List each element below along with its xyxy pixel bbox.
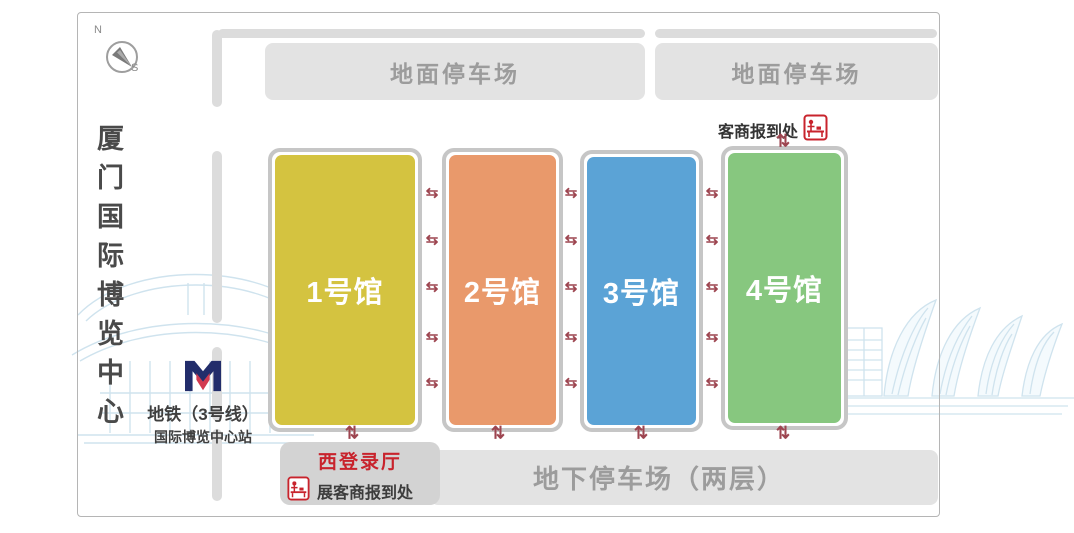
ground-parking-left-label: 地面停车场 bbox=[390, 55, 520, 89]
hall-2: 2号馆 bbox=[442, 148, 563, 432]
ground-parking-left: 地面停车场 bbox=[265, 43, 645, 100]
west-hall-title: 西登录厅 bbox=[280, 447, 440, 474]
road-segment bbox=[212, 151, 222, 323]
exhibitor-checkin: 展客商报到处 bbox=[280, 476, 440, 506]
hall-3-label: 3号馆 bbox=[603, 270, 680, 312]
ground-parking-right-label: 地面停车场 bbox=[732, 55, 862, 89]
metro-station-label: 国际博览中心站 bbox=[128, 427, 278, 447]
hall-1: 1号馆 bbox=[268, 148, 422, 432]
exhibitor-checkin-label: 展客商报到处 bbox=[317, 479, 413, 503]
hall-1-label: 1号馆 bbox=[306, 269, 383, 311]
metro-logo-icon bbox=[181, 358, 225, 394]
merchant-checkin-label: 客商报到处 bbox=[718, 118, 798, 142]
compass-north-label: N bbox=[94, 24, 102, 36]
hall-4-area: 4号馆 bbox=[728, 153, 841, 423]
hall-2-label: 2号馆 bbox=[464, 269, 541, 311]
page-title: 厦门国际博览中心 bbox=[89, 124, 128, 436]
hall-2-area: 2号馆 bbox=[449, 155, 556, 425]
metro-station: 地铁（3号线） 国际博览中心站 bbox=[128, 358, 278, 447]
hall-4: 4号馆 bbox=[721, 146, 848, 430]
road-segment bbox=[655, 29, 937, 38]
hall-3: 3号馆 bbox=[580, 150, 703, 432]
ground-parking-right: 地面停车场 bbox=[655, 43, 938, 100]
hall-1-area: 1号馆 bbox=[275, 155, 415, 425]
merchant-checkin: 客商报到处 bbox=[718, 114, 828, 146]
road-segment bbox=[212, 30, 222, 107]
expo-center-map: N S 厦门国际博览中心 地面停车场 地面停车场 1号馆 2号馆 3号馆 4号馆 bbox=[0, 0, 1074, 533]
compass-needle-icon bbox=[106, 41, 138, 73]
underground-parking-label: 地下停车场（两层） bbox=[533, 459, 785, 496]
road-segment bbox=[218, 29, 645, 38]
underground-parking: 地下停车场（两层） bbox=[430, 450, 938, 505]
metro-line-label: 地铁（3号线） bbox=[128, 400, 278, 425]
hall-3-area: 3号馆 bbox=[587, 157, 696, 425]
reception-desk-icon bbox=[287, 476, 310, 506]
west-login-hall: 西登录厅 展客商报到处 bbox=[280, 442, 440, 505]
reception-desk-icon bbox=[803, 114, 828, 146]
hall-4-label: 4号馆 bbox=[746, 267, 823, 309]
